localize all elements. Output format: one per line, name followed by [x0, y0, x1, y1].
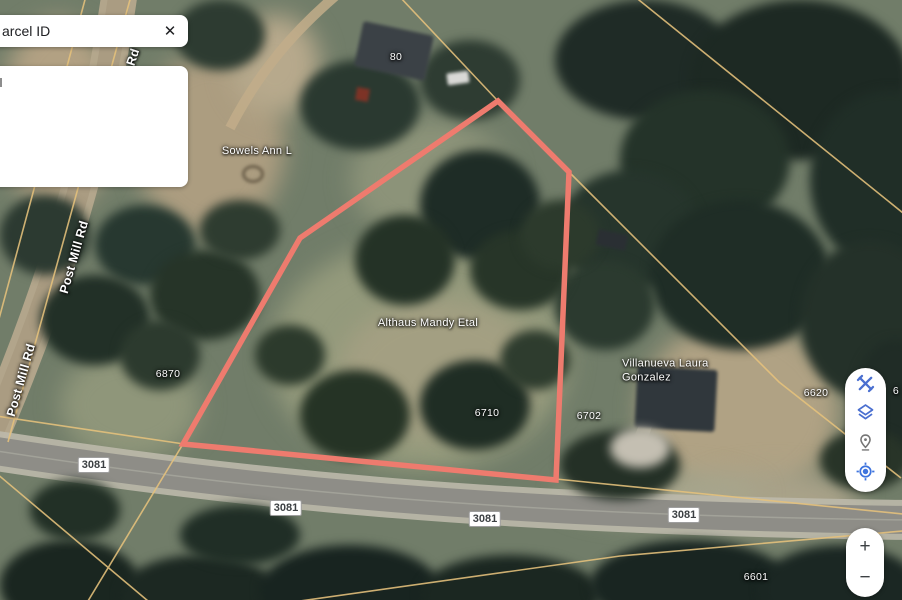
- my-location-icon: [855, 461, 876, 487]
- route-shield-3081: 3081: [668, 507, 700, 523]
- parcel-search-box[interactable]: arcel ID ✕: [0, 15, 188, 47]
- close-icon[interactable]: ✕: [158, 19, 182, 43]
- route-shield-3081: 3081: [270, 500, 302, 516]
- road-name-label: Post Mill Rd: [4, 342, 38, 418]
- road-name-label-truncated: Rd: [124, 47, 143, 68]
- layers-button[interactable]: [854, 403, 878, 427]
- location-pin-button[interactable]: [854, 433, 878, 457]
- layers-icon: [855, 402, 876, 428]
- owner-label: Althaus Mandy Etal: [378, 317, 478, 329]
- parcel-number: 6710: [475, 407, 500, 419]
- parcel-number: 6870: [156, 368, 181, 380]
- map-tools-panel: [845, 368, 886, 492]
- location-pin-icon: [855, 432, 876, 458]
- map-canvas[interactable]: Sowels Ann L Althaus Mandy Etal Villanue…: [0, 0, 902, 600]
- zoom-controls: + −: [846, 528, 884, 597]
- parcel-number: 6702: [577, 410, 602, 422]
- parcel-number: 80: [390, 51, 402, 63]
- parcel-number: 6620: [804, 387, 829, 399]
- route-shield-3081: 3081: [469, 511, 501, 527]
- zoom-in-button[interactable]: +: [853, 536, 877, 558]
- my-location-button[interactable]: [854, 462, 878, 486]
- owner-label: Sowels Ann L: [222, 145, 292, 157]
- route-shield-3081: 3081: [78, 457, 110, 473]
- draw-measure-tools-icon: [855, 373, 876, 399]
- owner-label: Villanueva Laura Gonzalez: [622, 358, 709, 385]
- owner-label-line2: Gonzalez: [622, 371, 709, 385]
- owner-label-line1: Villanueva Laura: [622, 358, 709, 372]
- parcel-number: 6601: [744, 571, 769, 583]
- search-input[interactable]: arcel ID: [2, 15, 50, 47]
- draw-measure-tools-button[interactable]: [854, 374, 878, 398]
- zoom-out-button[interactable]: −: [853, 567, 877, 589]
- search-suggestions-panel[interactable]: [0, 66, 188, 187]
- road-name-label: Post Mill Rd: [57, 219, 91, 295]
- truncated-suggestion-fragment: [0, 78, 2, 87]
- parcel-number-truncated: 6: [893, 385, 899, 397]
